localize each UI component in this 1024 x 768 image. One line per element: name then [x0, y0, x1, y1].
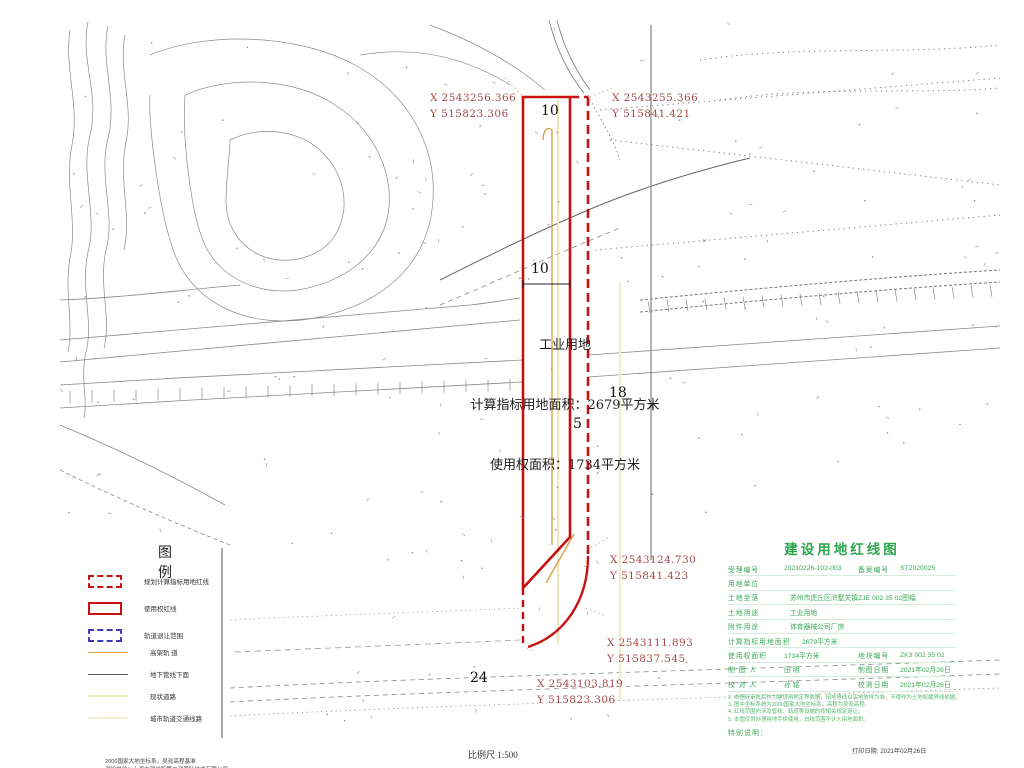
dim-10-top: 10 — [541, 103, 559, 119]
note-line: 5. 本图仅供办理用地手续使用，白线范围不计入用地面积。 — [728, 717, 956, 724]
legend-item-label: 城市轨道交通线路 — [150, 713, 202, 723]
pale-line2-swatch — [88, 717, 128, 719]
coord-label-mid-right: X 2543124.730Y 515841.423 — [610, 520, 696, 616]
legend-item: 使用权红线 — [88, 600, 177, 616]
coord-label-bottom: X 2543103.819Y 515823.306 — [537, 644, 623, 740]
dim-24: 24 — [470, 670, 488, 686]
table-cell-label: 受理编号 — [728, 564, 784, 574]
parcel-annotation: 工业用地 计算指标用地面积：2679平方米 使用权面积：1734平方米 — [440, 296, 690, 516]
table-cell-label: 使用权面积 — [728, 650, 784, 660]
dim-5: 5 — [573, 416, 582, 432]
coord-label-top-left: X 2543256.366Y 515823.306 — [430, 58, 516, 154]
table-cell-value: 苏州市虎丘区浒墅关镇ZJE 002 35 02图幅 — [790, 592, 954, 602]
table-cell-value: ZK3 002 35 02 — [900, 652, 954, 659]
table-cell-label: 校测日期 — [858, 679, 900, 689]
land-use-label: 工业用地 — [440, 336, 690, 356]
table-cell-value: 田 明 — [784, 664, 858, 674]
table-row: 土地坐落苏州市虎丘区浒墅关镇ZJE 002 35 02图幅 — [728, 591, 956, 605]
use-right-area-label: 使用权面积：1734平方米 — [440, 456, 690, 476]
table-row: 使用权面积1734平方米地块编号ZK3 002 35 02 — [728, 648, 956, 662]
table-row: 制 图 人田 明制图日期2021年02月26日 — [728, 663, 956, 677]
table-cell-value: 2021年02月26日 — [900, 664, 954, 674]
datum-note: 2000国家大地坐标系，吴淞高程基准测绘单位：上海市测绘院第二测量队技术有限公司 — [105, 742, 228, 768]
legend-item-label: 使用权红线 — [144, 603, 177, 613]
table-cell-label: 计算指标用地面积 — [728, 636, 802, 646]
legend-item-label: 地下管线下面 — [150, 669, 189, 679]
table-cell-value: 20210226-102-003 — [784, 565, 858, 572]
legend-item-label: 规划计算指标用地红线 — [144, 576, 209, 586]
title-block-notes: 2. 本图经审批后作为建设用地定界依据，用地界线以实地放样为准，不得作为土地权属… — [728, 695, 956, 725]
table-cell-value: 孙 铭 — [784, 679, 858, 689]
print-date-label: 打印日期: 2021年02月26日 — [852, 746, 926, 755]
table-row: 校 对 人孙 铭校测日期2021年02月26日 — [728, 677, 956, 691]
pale-line-swatch — [88, 695, 128, 697]
dimension-line — [523, 280, 570, 288]
coord-label-top-right: X 2543255.366Y 515841.421 — [612, 58, 698, 154]
table-cell-label: 地块编号 — [858, 650, 900, 660]
table-cell-label: 用地单位 — [728, 578, 790, 588]
redline-map-page: X 2543256.366Y 515823.306 X 2543255.366Y… — [0, 0, 1024, 768]
scale-label: 比例尺 1:500 — [468, 748, 518, 761]
indicator-area-label: 计算指标用地面积：2679平方米 — [440, 396, 690, 416]
legend-item: 规划计算指标用地红线 — [88, 573, 209, 589]
table-row: 受理编号20210226-102-003备案编号ST2020025 — [728, 562, 956, 576]
table-cell-value: 体育器械公司厂房 — [790, 621, 954, 631]
table-cell-label: 备案编号 — [858, 564, 900, 574]
red-solid-rect-swatch — [88, 602, 122, 615]
table-cell-value: 2021年02月26日 — [900, 679, 954, 689]
note-line: 4. 红线范围内涉及管线、轨道等设施的按相关规定退让。 — [728, 709, 956, 716]
legend-item: 高架轨 道 — [88, 644, 178, 660]
table-cell-label: 制图日期 — [858, 664, 900, 674]
table-row: 计算指标用地面积2679平方米 — [728, 634, 956, 648]
table-cell-label: 附件用途 — [728, 621, 790, 631]
table-cell-label: 制 图 人 — [728, 664, 784, 674]
legend-item-label: 高架轨 道 — [150, 647, 178, 657]
note-line: 2. 本图经审批后作为建设用地定界依据，用地界线以实地放样为准，不得作为土地权属… — [728, 695, 956, 702]
red-dashed-rect-swatch — [88, 575, 122, 588]
legend-item-label: 现状道路 — [150, 691, 176, 701]
title-block-table: 受理编号20210226-102-003备案编号ST2020025用地单位土地坐… — [728, 562, 956, 692]
blue-dashed-rect-swatch — [88, 629, 122, 642]
special-note-label: 特别说明： — [728, 728, 956, 738]
orange-line-swatch — [88, 652, 128, 653]
legend-item: 轨道退让范围 — [88, 627, 183, 643]
table-row: 土地用途工业用地 — [728, 605, 956, 619]
legend-item-label: 轨道退让范围 — [144, 630, 183, 640]
legend-item: 城市轨道交通线路 — [88, 710, 202, 726]
table-row: 用地单位 — [728, 576, 956, 590]
legend-item: 现状道路 — [88, 688, 176, 704]
table-cell-label: 校 对 人 — [728, 679, 784, 689]
table-cell-label: 土地用途 — [728, 607, 790, 617]
table-row: 附件用途体育器械公司厂房 — [728, 620, 956, 634]
dim-10-mid: 10 — [531, 261, 549, 277]
title-block: 建设用地红线图 受理编号20210226-102-003备案编号ST202002… — [728, 538, 956, 738]
table-cell-label: 土地坐落 — [728, 592, 790, 602]
stream-lines — [549, 20, 620, 160]
table-cell-value: 1734平方米 — [784, 650, 858, 660]
legend-item: 地下管线下面 — [88, 666, 189, 682]
dim-18: 18 — [609, 385, 627, 401]
table-cell-value: ST2020025 — [900, 565, 954, 572]
gray-line-swatch — [88, 674, 128, 675]
table-cell-value: 工业用地 — [790, 607, 954, 617]
table-cell-value: 2679平方米 — [802, 636, 954, 646]
drawing-title: 建设用地红线图 — [728, 538, 956, 558]
